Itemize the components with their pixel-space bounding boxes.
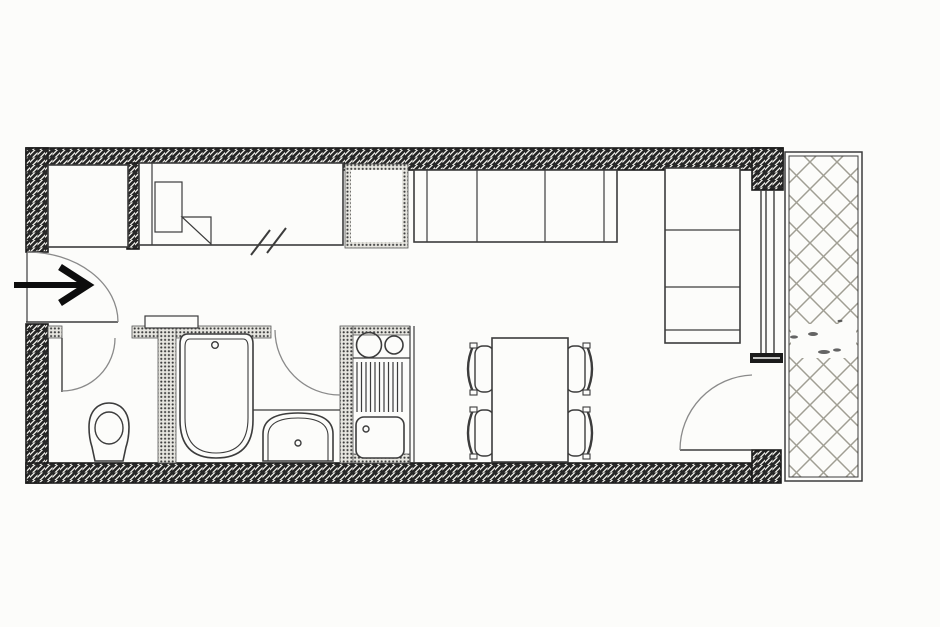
bathroom-door-swing: [275, 330, 340, 395]
entry-hall: [14, 252, 118, 322]
drainer-stripes: [357, 362, 402, 412]
entrance-arrow: [14, 267, 88, 303]
wall-kitchen-left: [340, 326, 353, 463]
wardrobe: [345, 164, 408, 248]
burner-small: [385, 336, 403, 354]
closet: [48, 165, 128, 247]
chair-bottom-left: [468, 407, 494, 459]
bathroom-step: [145, 316, 198, 328]
sofa-horizontal: [414, 170, 617, 242]
washbasin: [263, 413, 333, 461]
wall-left-lower: [26, 324, 48, 483]
sofa-vertical: [665, 168, 740, 343]
wc-door-swing: [62, 338, 115, 391]
floor-plan-drawing: Studio apartment floor plan: [0, 0, 940, 627]
chair-back: [586, 344, 592, 394]
kitchen-sink: [356, 417, 404, 458]
wall-closet-stub: [127, 163, 139, 249]
wall-bottom: [26, 463, 752, 483]
wall-wc-top-stub: [48, 326, 62, 338]
toilet: [89, 403, 129, 461]
chair-bottom-right: [566, 407, 592, 459]
floor-plan: Studio apartment floor plan: [0, 0, 940, 627]
wc-room: [62, 338, 129, 461]
chair-back: [586, 408, 592, 458]
wall-bottom-right-stub: [752, 450, 781, 483]
burner-large: [357, 333, 382, 358]
chair-back: [468, 408, 474, 458]
chair-top-right: [566, 343, 592, 395]
single-bed: [139, 163, 343, 255]
wall-top-right-block: [752, 148, 783, 190]
dining-set: [468, 338, 592, 462]
balcony-floor-crosshatch: [789, 156, 858, 477]
bathtub: [180, 334, 253, 458]
balcony: [785, 152, 862, 481]
chair-back: [468, 344, 474, 394]
chair-top-left: [468, 343, 494, 395]
kitchen-unit: [353, 326, 414, 463]
wall-left-upper: [26, 148, 48, 252]
wall-wc-bath-divider: [158, 326, 176, 463]
balcony-door: [680, 375, 752, 450]
dining-table: [492, 338, 568, 462]
balcony-door-swing: [680, 375, 752, 450]
window: [750, 190, 783, 363]
wall-kitchen-top: [353, 326, 410, 335]
